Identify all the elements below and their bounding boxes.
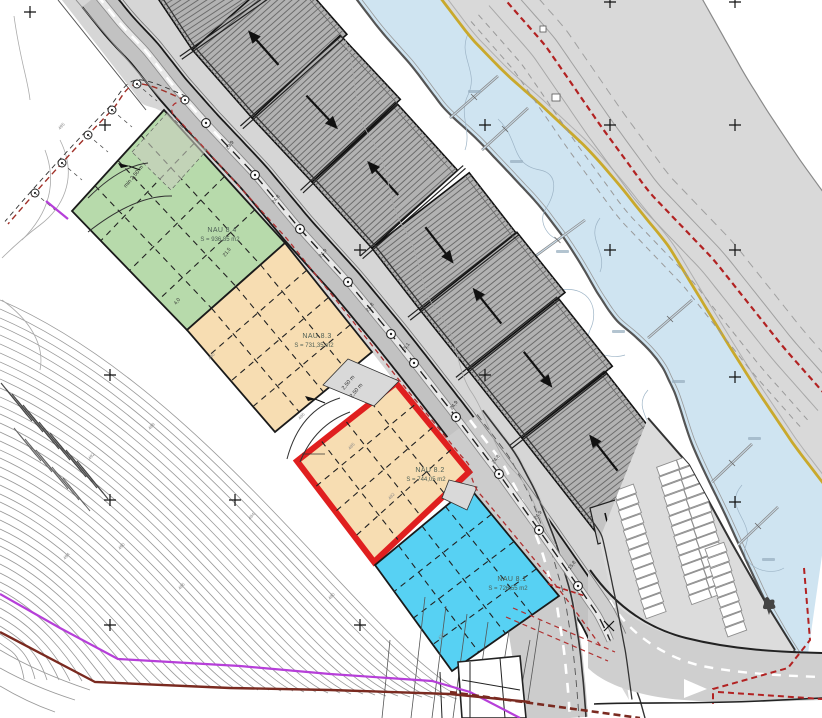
svg-text:S = 731,35 m2: S = 731,35 m2	[294, 343, 334, 349]
svg-text:NAU 8.2: NAU 8.2	[415, 467, 444, 474]
svg-text:S = 744,05 m2: S = 744,05 m2	[406, 477, 446, 483]
svg-text:S = 936,85 m2: S = 936,85 m2	[200, 237, 240, 243]
svg-text:NAU 8.3: NAU 8.3	[302, 333, 331, 340]
svg-text:S = 726,55 m2: S = 726,55 m2	[488, 586, 528, 592]
svg-text:NAU 8.4: NAU 8.4	[207, 227, 236, 234]
svg-text:NAU 8.1: NAU 8.1	[497, 576, 526, 583]
